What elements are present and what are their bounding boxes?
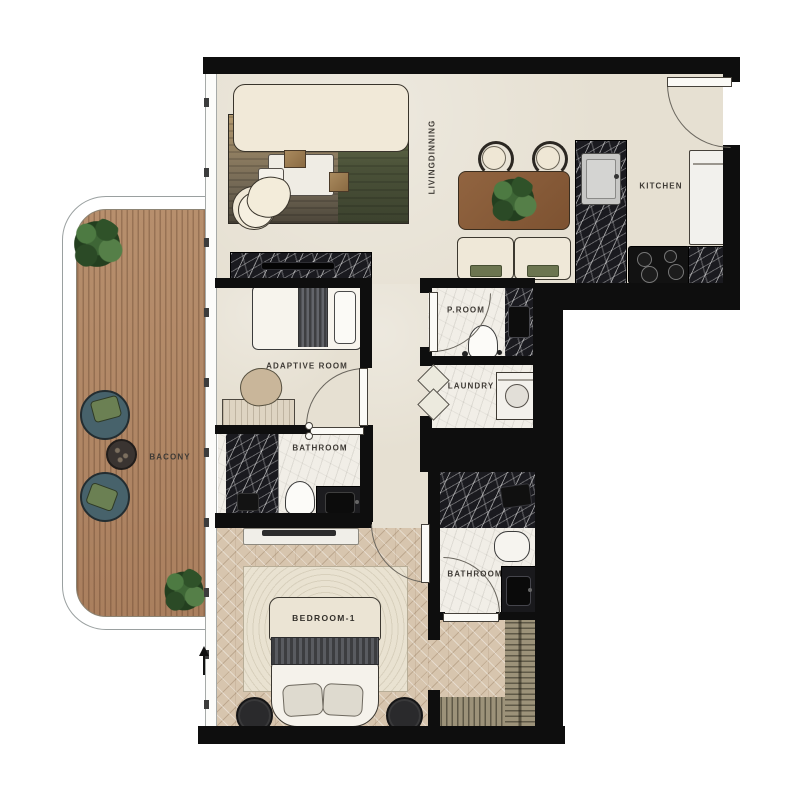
proom-label: P.ROOM	[447, 306, 485, 315]
wall-north	[203, 57, 740, 74]
entry-door-leaf	[667, 77, 732, 87]
mullion-tick	[204, 378, 209, 387]
balcony-side-table	[106, 439, 137, 470]
centerpiece-plant-icon	[488, 176, 538, 224]
bed-blanket-stripes	[271, 637, 379, 665]
mullion-tick	[204, 238, 209, 247]
bathroom2-door-leaf	[443, 613, 499, 622]
kitchen-faucet	[614, 174, 619, 179]
wall-proom-laundry	[428, 356, 535, 365]
dining-chair-seat	[536, 146, 560, 170]
cooktop-burner	[637, 252, 652, 267]
bathroom1-door-hinge	[305, 432, 313, 440]
adaptive-room-label: ADAPTIVE ROOM	[266, 362, 348, 371]
coffee-table-wood-tray	[329, 172, 349, 192]
tv-icon	[262, 263, 334, 269]
mullion-tick	[204, 448, 209, 457]
bed-pillow	[282, 683, 324, 718]
floor-plan: BACONY	[0, 0, 800, 800]
bed-pillow	[322, 683, 364, 717]
cooktop-burner	[664, 250, 677, 263]
washing-machine-panel-line	[498, 379, 533, 381]
wall-utility-shaft	[420, 428, 563, 472]
wall-living-south	[420, 278, 535, 288]
mullion-tick	[204, 700, 209, 709]
mullion-tick	[204, 98, 209, 107]
wall-adaptive-east	[360, 288, 372, 368]
wall-kitchen-south	[533, 283, 740, 310]
kitchen-counter	[688, 246, 728, 284]
shower-head	[238, 494, 258, 510]
sofa	[233, 84, 409, 152]
wall-south	[198, 726, 565, 744]
proom-sink	[508, 306, 530, 338]
cooktop-burner	[641, 266, 658, 283]
balcony-plant-icon	[162, 568, 206, 614]
mullion-tick	[204, 518, 209, 527]
wall-bedroom-east	[428, 690, 440, 728]
mullion-tick	[204, 168, 209, 177]
wall-east-bathroom2	[535, 472, 563, 728]
toilet	[285, 481, 315, 515]
refrigerator-door-line	[693, 163, 723, 165]
washing-machine-drum	[505, 384, 529, 408]
bedroom1-label: BEDROOM-1	[292, 613, 356, 623]
wall-bathroom1-east	[360, 425, 373, 522]
wall-bedroom-north	[215, 513, 372, 528]
coffee-table-wood-tray	[284, 150, 306, 168]
kitchen-sink-basin	[586, 159, 616, 199]
bathroom2-sink	[506, 576, 531, 606]
wall-bedroom-east	[428, 618, 440, 640]
bathroom1-sink	[325, 492, 355, 514]
bench-cushion	[527, 265, 559, 277]
kitchen-label: KITCHEN	[639, 182, 682, 191]
mullion-tick	[204, 308, 209, 317]
bench-cushion	[470, 265, 502, 277]
bathroom1-door-leaf	[310, 427, 364, 435]
cooktop-burner	[668, 264, 684, 280]
wall-bathroom2-south-jamb	[496, 612, 535, 620]
balcony-plant-icon	[70, 218, 124, 270]
bathroom2-label: BATHROOM	[447, 570, 502, 579]
bathroom2-basin	[494, 531, 530, 562]
proom-accessory	[497, 350, 502, 355]
mullion-tick	[204, 588, 209, 597]
wall-adaptive-north	[215, 278, 372, 288]
adaptive-bed-throw	[298, 286, 328, 347]
balcony-label: BACONY	[149, 453, 190, 462]
wall-bathroom1-north	[215, 425, 310, 434]
proom-door-leaf	[429, 292, 438, 352]
bathroom2-faucet	[528, 588, 532, 592]
bathroom1-faucet	[355, 500, 359, 504]
bedroom-door-leaf	[421, 524, 430, 583]
utility-grate-horizontal	[435, 697, 505, 728]
bathroom1-label: BATHROOM	[292, 444, 347, 453]
adaptive-bed-pillow	[334, 291, 356, 344]
laundry-label: LAUNDRY	[448, 382, 495, 391]
entrance-arrow-icon	[196, 646, 208, 676]
shower-head	[501, 484, 532, 508]
utility-grate-vertical	[505, 618, 535, 728]
dresser-top-tray	[262, 530, 336, 536]
living-dining-label: LIVINGDINNING	[428, 120, 437, 195]
dining-chair-seat	[482, 146, 506, 170]
bathroom1-door-hinge	[305, 422, 313, 430]
adaptive-door-leaf	[359, 368, 368, 426]
